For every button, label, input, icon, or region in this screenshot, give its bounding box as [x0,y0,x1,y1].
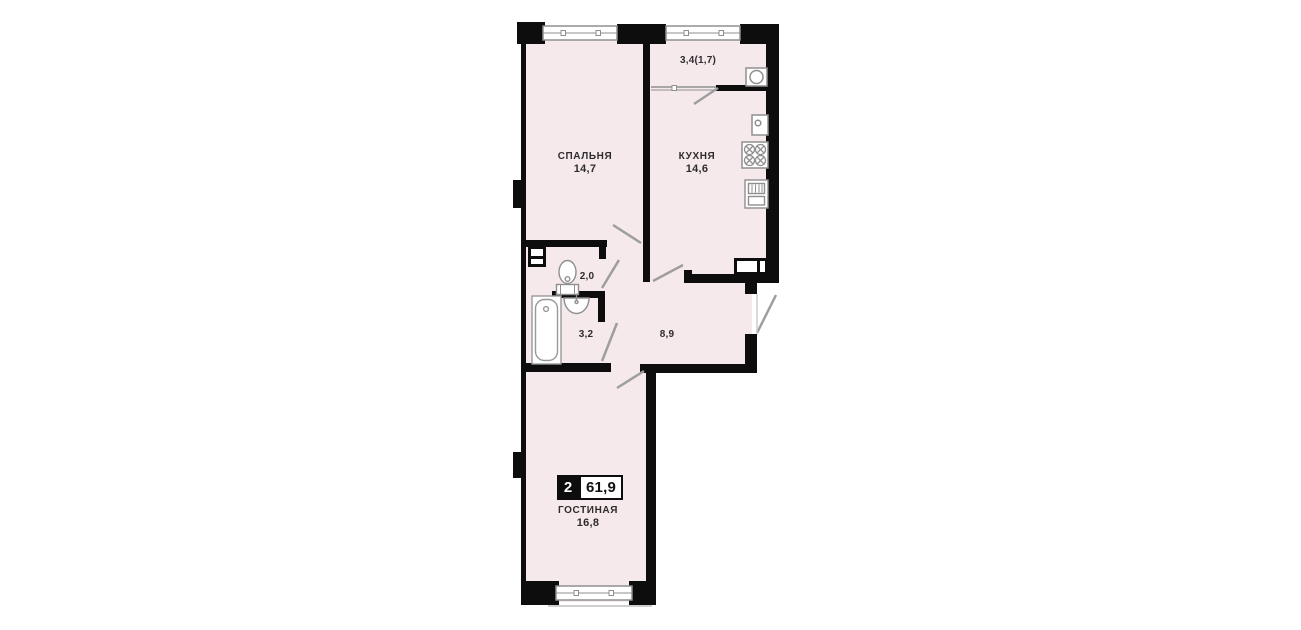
kitchen-name: КУХНЯ [647,151,747,163]
wall-segment [521,44,526,605]
wall-segment [617,24,666,44]
wall-segment [766,24,779,283]
wall-segment [521,363,611,372]
unit-badge: 2 61,9 [557,475,623,500]
living-name: ГОСТИНАЯ [538,505,638,517]
bedroom-name: СПАЛЬНЯ [535,151,635,163]
living-label: ГОСТИНАЯ 16,8 [538,505,638,529]
vent-shaft-icon [734,258,768,275]
balcony-area: 3,4(1,7) [648,55,748,67]
wall-segment [513,452,526,478]
unit-badge-total-area: 61,9 [579,475,623,500]
wall-segment [745,334,757,373]
wall-segment [513,180,526,208]
floor-plan: СПАЛЬНЯ 14,7 КУХНЯ 14,6 3,4(1,7) 2,0 3,2… [0,0,1301,630]
hallway-area: 8,9 [647,329,687,341]
wall-segment [599,240,606,259]
wall-segment [598,291,605,322]
wall-segment [745,283,757,294]
wall-segment [521,581,559,605]
wall-segment [646,371,656,605]
bedroom-label: СПАЛЬНЯ 14,7 [535,151,635,175]
living-area: 16,8 [538,517,638,530]
toilet-area: 2,0 [567,271,607,283]
door-swing-entrance [757,295,776,333]
bathroom-area: 3,2 [566,329,606,341]
vent-shaft-icon [528,246,546,267]
wall-segment [640,364,757,373]
wall-segment [684,274,768,283]
bedroom-area: 14,7 [535,163,635,176]
kitchen-label: КУХНЯ 14,6 [647,151,747,175]
room-area-middle-block [521,245,752,371]
kitchen-area: 14,6 [647,163,747,176]
unit-badge-rooms: 2 [557,475,579,500]
wall-segment [629,581,656,605]
wall-segment [716,85,768,91]
wall-segment [517,22,545,44]
